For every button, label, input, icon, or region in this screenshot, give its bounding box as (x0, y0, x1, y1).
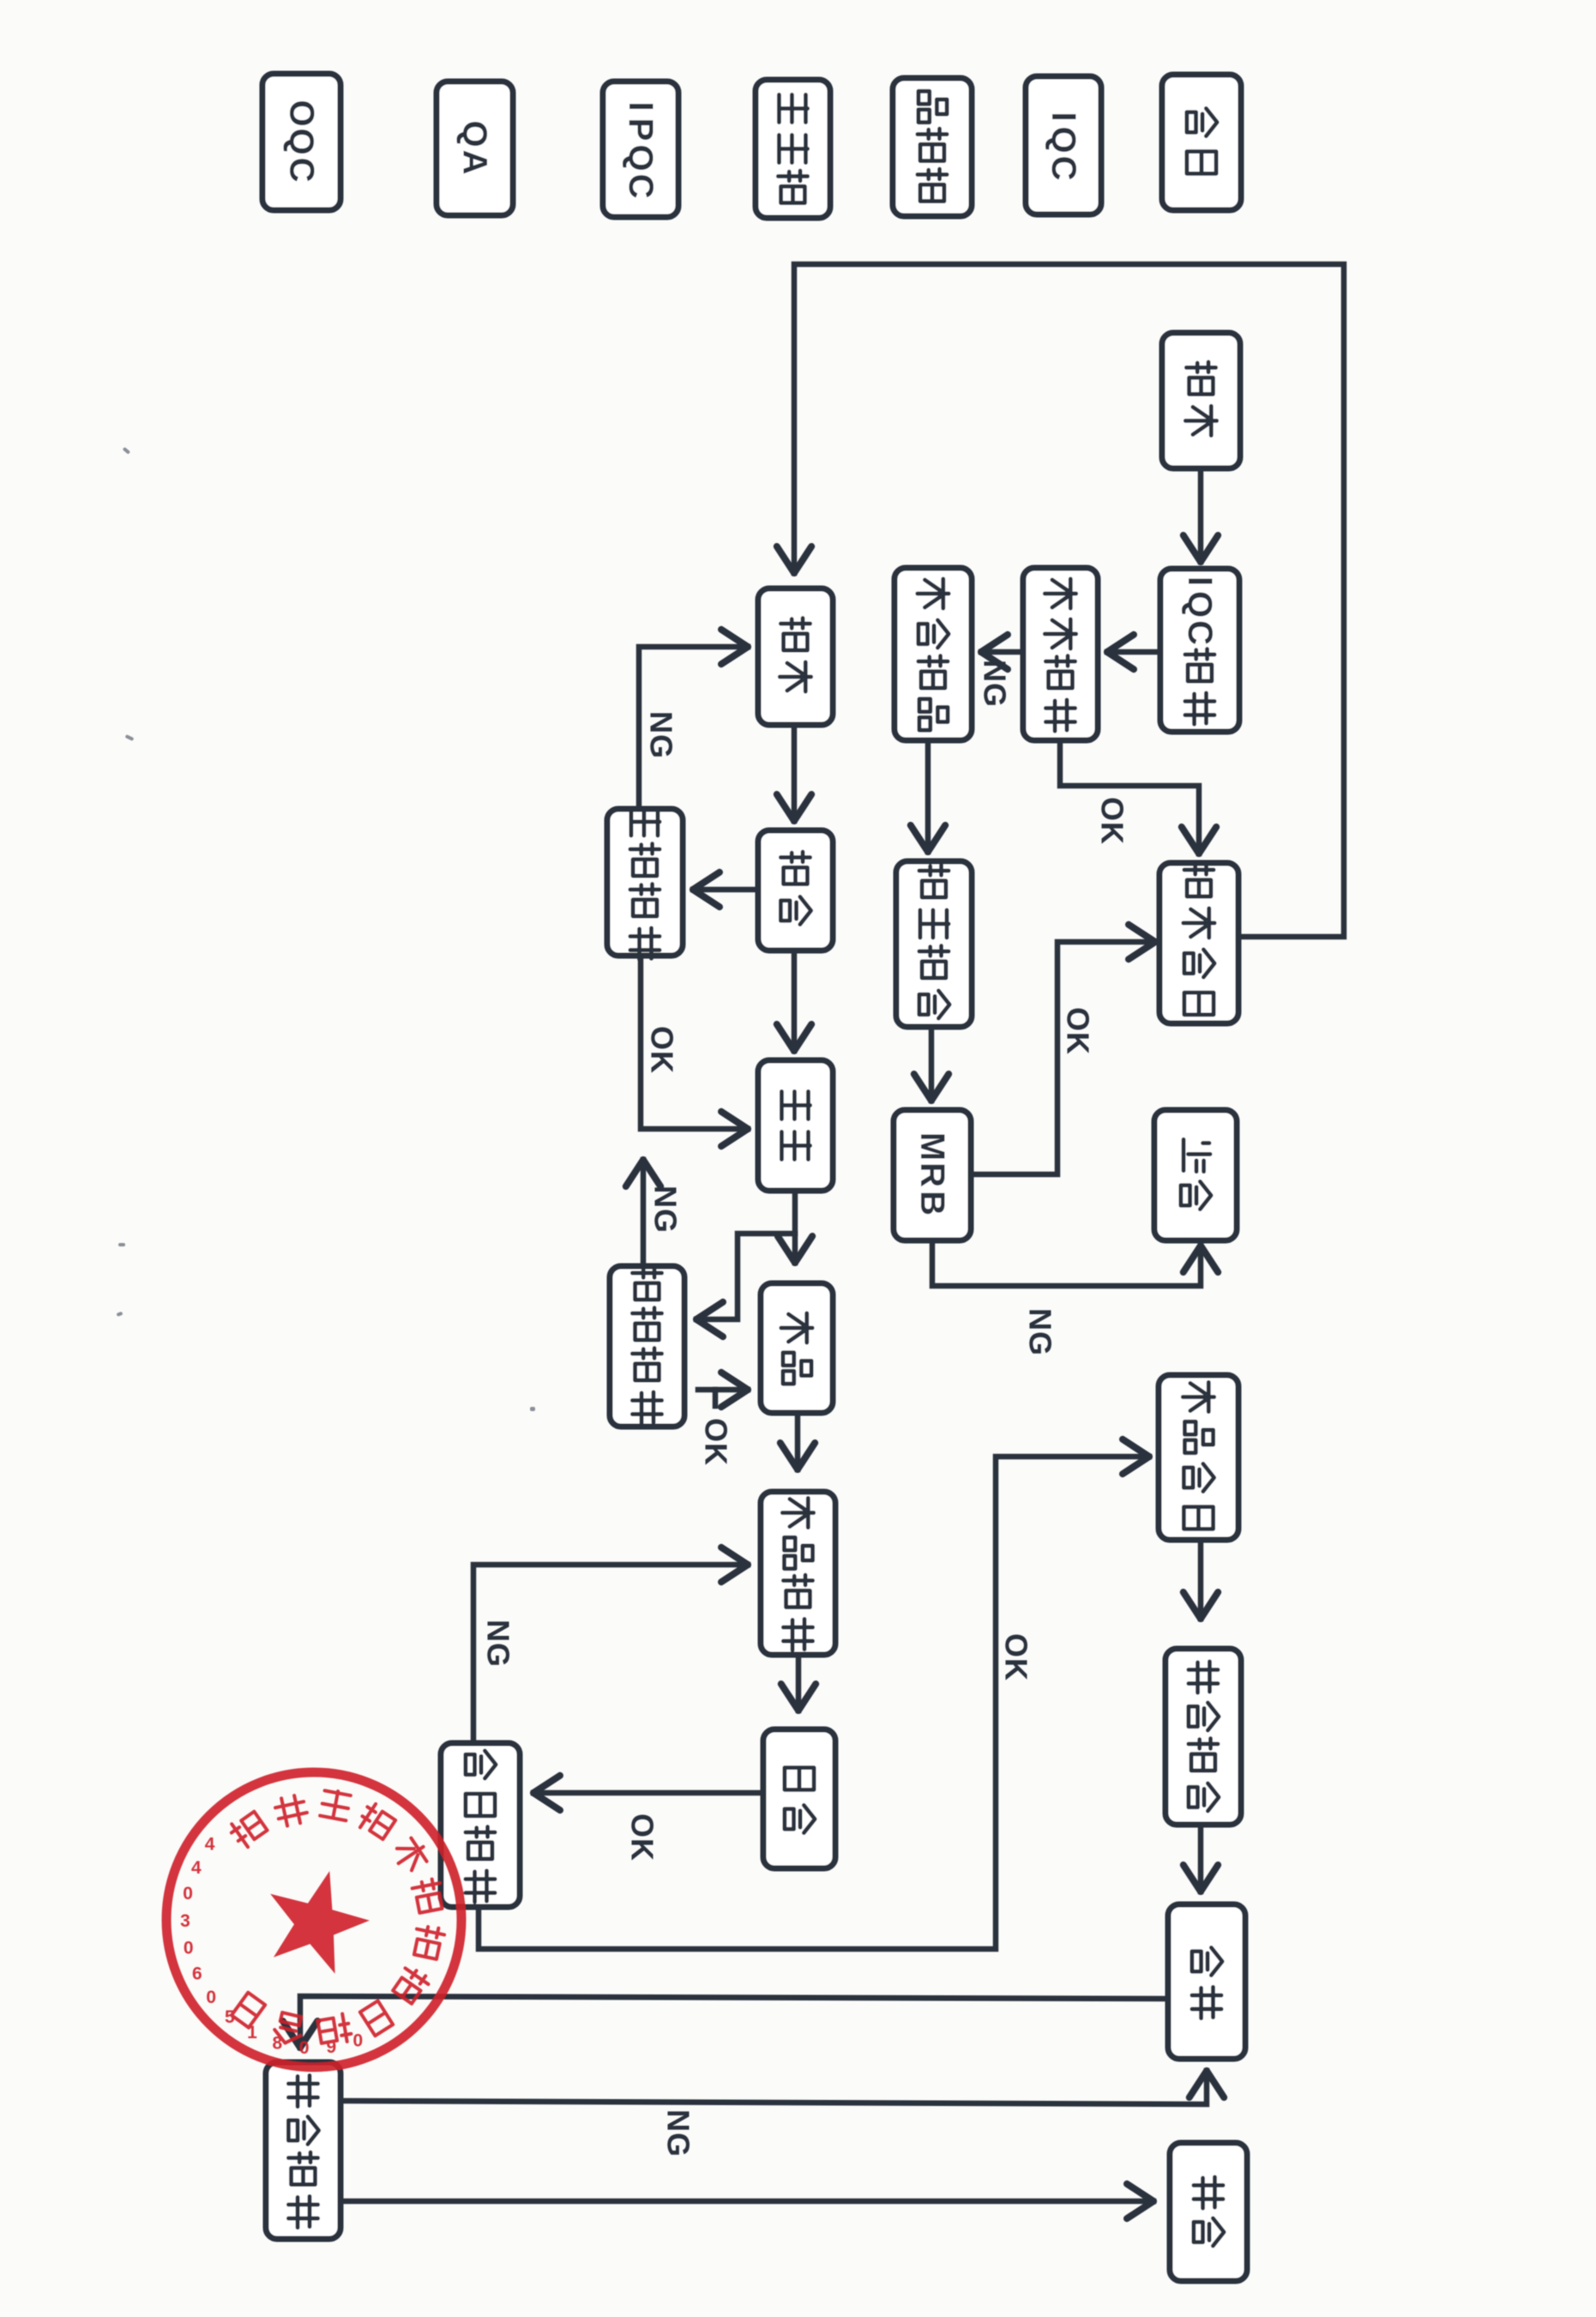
svg-text:C: C (622, 174, 659, 200)
svg-text:8: 8 (273, 2033, 283, 2053)
svg-text:0: 0 (183, 1884, 193, 1904)
svg-text:4: 4 (205, 1834, 215, 1854)
svg-text:NG: NG (661, 2109, 696, 2157)
svg-text:I: I (1181, 576, 1219, 587)
svg-text:0: 0 (352, 2031, 363, 2051)
svg-text:NG: NG (978, 660, 1013, 708)
svg-text:0: 0 (206, 1988, 216, 2007)
svg-text:M: M (913, 1132, 951, 1162)
svg-text:A: A (456, 150, 494, 176)
svg-text:9: 9 (327, 2037, 337, 2057)
svg-text:OK: OK (1061, 1007, 1096, 1055)
svg-text:4: 4 (191, 1858, 202, 1878)
svg-text:P: P (622, 118, 659, 142)
svg-text:R: R (913, 1162, 951, 1188)
svg-text:I: I (1045, 112, 1082, 122)
svg-text:C: C (283, 158, 321, 184)
svg-text:I: I (622, 101, 659, 112)
svg-text:NG: NG (1023, 1308, 1058, 1356)
svg-text:6: 6 (192, 1964, 202, 1984)
svg-text:Q: Q (456, 120, 494, 148)
svg-text:O: O (283, 100, 321, 127)
svg-text:Q: Q (283, 128, 321, 155)
svg-text:C: C (1045, 156, 1082, 182)
svg-text:Q: Q (1181, 591, 1219, 618)
svg-text:0: 0 (299, 2038, 310, 2058)
svg-text:0: 0 (184, 1938, 194, 1958)
svg-text:NG: NG (644, 711, 679, 759)
svg-text:1: 1 (247, 2023, 257, 2042)
svg-text:Q: Q (622, 144, 659, 172)
svg-text:NG: NG (481, 1620, 516, 1668)
svg-text:C: C (1181, 620, 1219, 646)
svg-text:NG: NG (648, 1186, 684, 1234)
svg-text:OK: OK (645, 1026, 680, 1074)
svg-text:3: 3 (180, 1911, 190, 1931)
svg-text:Q: Q (1045, 126, 1082, 154)
svg-text:B: B (913, 1191, 951, 1216)
svg-text:OK: OK (999, 1633, 1034, 1681)
svg-text:OK: OK (625, 1813, 660, 1861)
svg-text:OK: OK (1095, 797, 1130, 845)
svg-text:OK: OK (699, 1418, 734, 1466)
svg-text:5: 5 (225, 2007, 235, 2027)
